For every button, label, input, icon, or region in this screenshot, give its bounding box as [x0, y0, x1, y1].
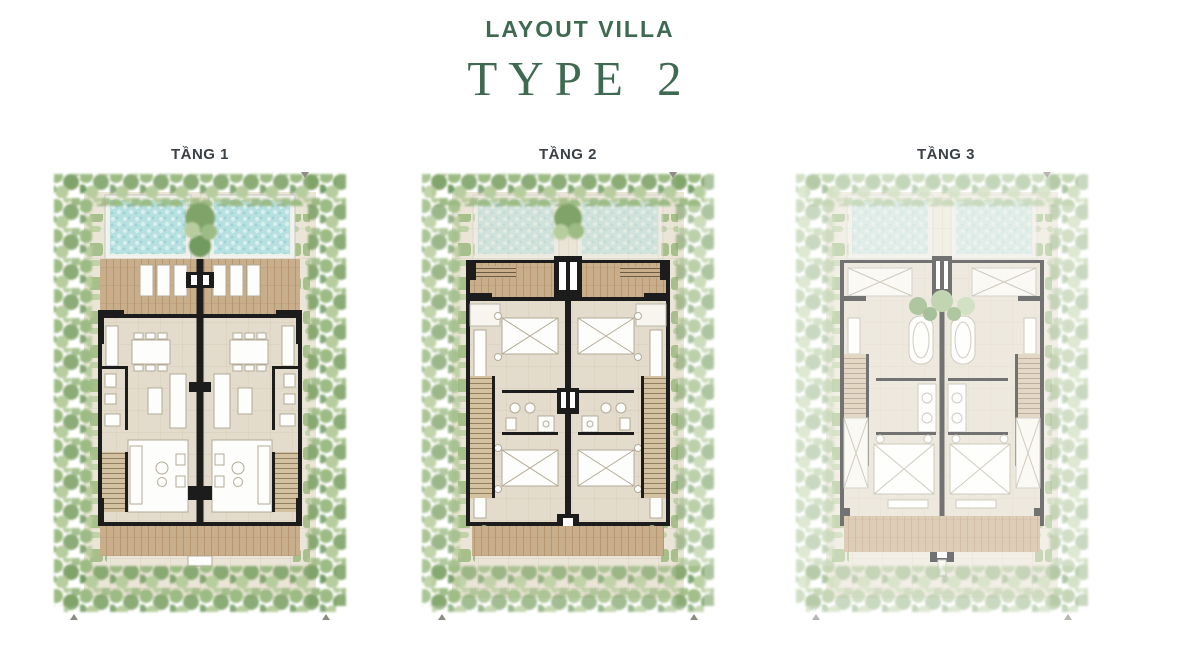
- toilet: [105, 374, 116, 387]
- coffee-table: [156, 462, 168, 474]
- sink: [105, 394, 116, 404]
- armchair: [176, 476, 185, 487]
- shower: [538, 416, 554, 432]
- bathtub: [909, 316, 933, 364]
- side-balcony: [844, 418, 868, 488]
- floor-2-label: TẦNG 2: [488, 146, 648, 163]
- closet: [106, 326, 118, 366]
- building-floor-2: [466, 256, 670, 556]
- floor-plan-3-image: [792, 166, 1092, 644]
- double-vanity: [918, 384, 936, 432]
- toilet: [506, 418, 516, 430]
- staircase: [470, 376, 492, 498]
- swimming-pool: [213, 199, 291, 255]
- kitchen-island: [148, 388, 162, 414]
- bedroom-bed: [495, 313, 559, 361]
- dining-table: [132, 340, 170, 364]
- building-floor-3: [840, 256, 1044, 576]
- floor-plan-1-image: [50, 166, 350, 644]
- floor-1-label: TẦNG 1: [120, 146, 280, 163]
- poster-subtitle: LAYOUT VILLA: [0, 16, 1160, 43]
- sun-loungers: [140, 265, 187, 296]
- floor-3-label: TẦNG 3: [866, 146, 1026, 163]
- sofa: [130, 446, 142, 504]
- floor-plan-2-image: [418, 166, 718, 644]
- rear-balcony: [472, 526, 664, 556]
- survey-marker: [1064, 614, 1072, 620]
- master-bed: [874, 435, 934, 494]
- survey-marker: [70, 614, 78, 620]
- dining-set: [132, 333, 170, 371]
- staircase: [102, 452, 126, 512]
- survey-marker: [438, 614, 446, 620]
- skylight-void: [848, 268, 912, 296]
- survey-marker: [322, 614, 330, 620]
- survey-marker: [812, 614, 820, 620]
- bench: [888, 500, 928, 508]
- kitchen-counter: [170, 374, 186, 428]
- swimming-pool: [109, 199, 187, 255]
- bedroom-bed: [495, 445, 559, 493]
- shower: [105, 414, 120, 426]
- pergola: [472, 266, 516, 278]
- poster-title: TYPE 2: [0, 50, 1160, 107]
- sink: [510, 403, 520, 413]
- roof-terrace-deck: [844, 516, 1040, 552]
- sink: [525, 403, 535, 413]
- living-room: [128, 440, 188, 512]
- survey-marker: [690, 614, 698, 620]
- entry-step: [188, 556, 212, 566]
- armchair: [176, 454, 185, 465]
- poster: LAYOUT VILLA TYPE 2 TẦNG 1 TẦNG 2 TẦNG 3: [0, 0, 1200, 662]
- closet: [848, 318, 860, 354]
